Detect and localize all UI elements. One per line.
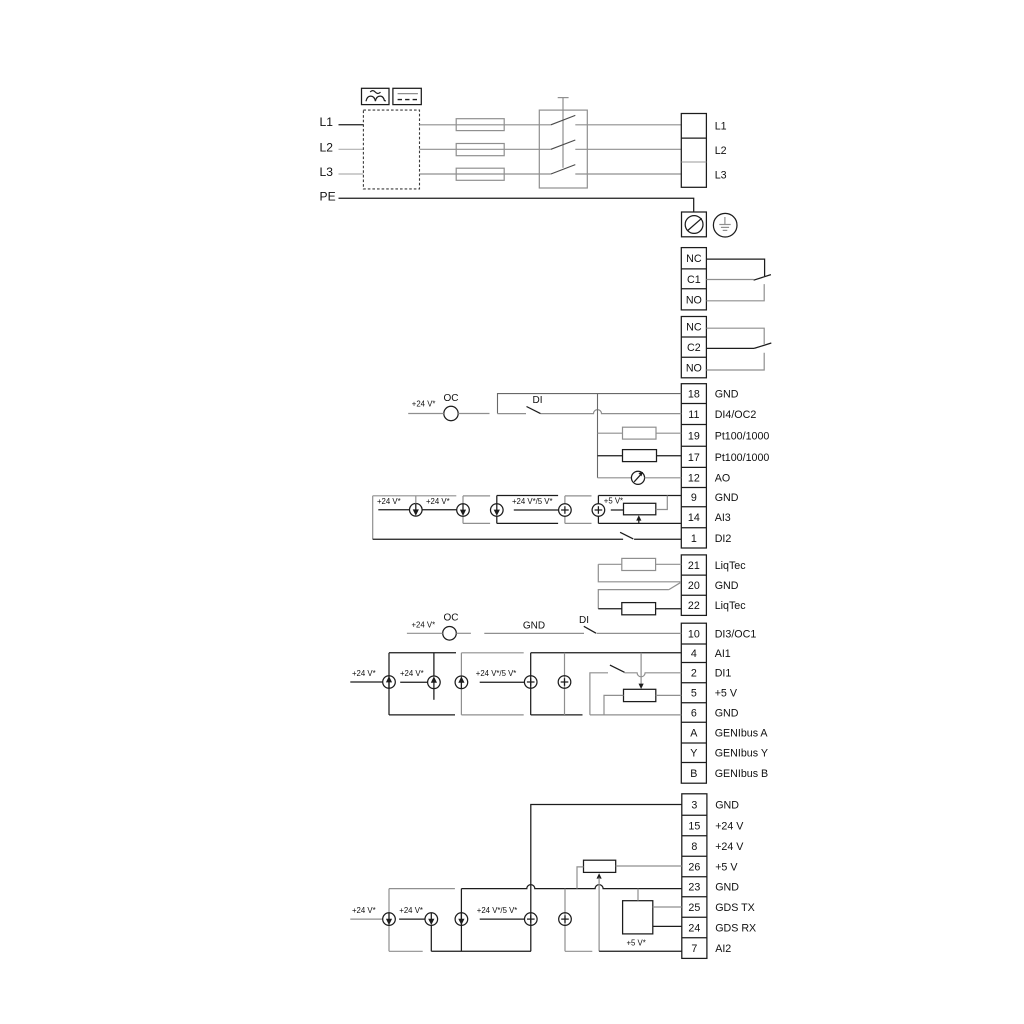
svg-text:+24 V*/5 V*: +24 V*/5 V*: [477, 906, 518, 915]
svg-text:20: 20: [688, 580, 700, 592]
svg-text:17: 17: [688, 452, 700, 464]
svg-text:GND: GND: [523, 621, 545, 632]
svg-text:NC: NC: [686, 322, 702, 334]
svg-text:6: 6: [691, 707, 697, 719]
svg-text:L1: L1: [320, 115, 334, 129]
svg-text:10: 10: [688, 629, 700, 641]
svg-text:DI: DI: [579, 615, 589, 626]
svg-text:+5 V: +5 V: [715, 861, 738, 873]
svg-text:L3: L3: [715, 170, 727, 182]
svg-text:AI1: AI1: [715, 648, 731, 660]
svg-text:NC: NC: [686, 253, 702, 265]
svg-text:GENIbus Y: GENIbus Y: [715, 748, 768, 760]
svg-text:2: 2: [691, 668, 697, 680]
svg-text:GND: GND: [715, 580, 739, 592]
svg-text:+24 V*/5 V*: +24 V*/5 V*: [476, 669, 517, 678]
svg-text:GND: GND: [715, 492, 739, 504]
svg-text:DI4/OC2: DI4/OC2: [715, 409, 757, 421]
svg-text:GND: GND: [715, 389, 739, 401]
svg-text:25: 25: [688, 902, 700, 914]
svg-text:NO: NO: [686, 362, 702, 374]
svg-text:11: 11: [688, 409, 699, 421]
svg-text:NO: NO: [686, 294, 702, 306]
svg-text:DI1: DI1: [715, 668, 732, 680]
svg-text:22: 22: [688, 600, 700, 612]
svg-text:LiqTec: LiqTec: [715, 600, 747, 612]
svg-text:B: B: [690, 768, 697, 780]
svg-text:+5 V*: +5 V*: [627, 938, 646, 947]
svg-text:C1: C1: [687, 274, 701, 286]
svg-text:GDS TX: GDS TX: [715, 902, 755, 914]
svg-text:PE: PE: [320, 190, 336, 204]
svg-text:GND: GND: [715, 707, 739, 719]
svg-text:C2: C2: [687, 342, 701, 354]
svg-text:+24 V*: +24 V*: [352, 906, 376, 915]
svg-text:DI: DI: [533, 395, 543, 406]
svg-text:19: 19: [688, 430, 700, 442]
svg-text:GND: GND: [715, 799, 739, 811]
svg-text:Y: Y: [690, 748, 697, 760]
svg-text:+24 V*: +24 V*: [352, 669, 376, 678]
svg-text:+24 V*: +24 V*: [377, 497, 401, 506]
svg-text:3: 3: [691, 799, 697, 811]
svg-text:14: 14: [688, 512, 700, 524]
svg-text:8: 8: [691, 841, 697, 853]
svg-text:LiqTec: LiqTec: [715, 560, 747, 572]
svg-text:GND: GND: [715, 882, 739, 894]
svg-text:24: 24: [688, 922, 700, 934]
svg-text:GDS RX: GDS RX: [715, 922, 756, 934]
svg-text:1: 1: [691, 533, 697, 545]
svg-text:+24 V*: +24 V*: [399, 906, 423, 915]
svg-text:+24 V*/5 V*: +24 V*/5 V*: [512, 497, 553, 506]
svg-text:AI2: AI2: [715, 943, 731, 955]
svg-text:+24 V*: +24 V*: [426, 497, 450, 506]
svg-text:21: 21: [688, 560, 700, 572]
svg-text:L2: L2: [320, 140, 334, 154]
svg-text:12: 12: [688, 472, 700, 484]
svg-text:OC: OC: [444, 393, 459, 404]
svg-text:9: 9: [691, 492, 697, 504]
svg-text:AO: AO: [715, 472, 730, 484]
svg-text:+24 V*: +24 V*: [412, 399, 436, 408]
svg-text:L1: L1: [715, 121, 727, 133]
svg-text:DI3/OC1: DI3/OC1: [715, 629, 757, 641]
svg-text:4: 4: [691, 648, 697, 660]
svg-text:5: 5: [691, 688, 697, 700]
svg-text:+24 V: +24 V: [715, 841, 744, 853]
svg-text:Pt100/1000: Pt100/1000: [715, 452, 770, 464]
svg-text:L2: L2: [715, 145, 727, 157]
svg-text:OC: OC: [444, 613, 459, 624]
svg-text:A: A: [690, 728, 698, 740]
svg-text:+24 V*: +24 V*: [412, 620, 436, 629]
svg-text:+5 V*: +5 V*: [604, 496, 623, 505]
svg-text:L3: L3: [320, 165, 334, 179]
svg-text:23: 23: [688, 882, 700, 894]
svg-text:AI3: AI3: [715, 512, 731, 524]
svg-text:+24 V: +24 V: [715, 820, 744, 832]
svg-text:GENIbus B: GENIbus B: [715, 768, 768, 780]
svg-text:GENIbus A: GENIbus A: [715, 728, 769, 740]
svg-text:15: 15: [688, 820, 700, 832]
svg-text:18: 18: [688, 389, 700, 401]
svg-text:Pt100/1000: Pt100/1000: [715, 430, 770, 442]
svg-text:DI2: DI2: [715, 533, 732, 545]
svg-text:+24 V*: +24 V*: [400, 669, 424, 678]
svg-text:+5 V: +5 V: [715, 688, 738, 700]
svg-text:26: 26: [688, 861, 700, 873]
svg-text:7: 7: [691, 943, 697, 955]
